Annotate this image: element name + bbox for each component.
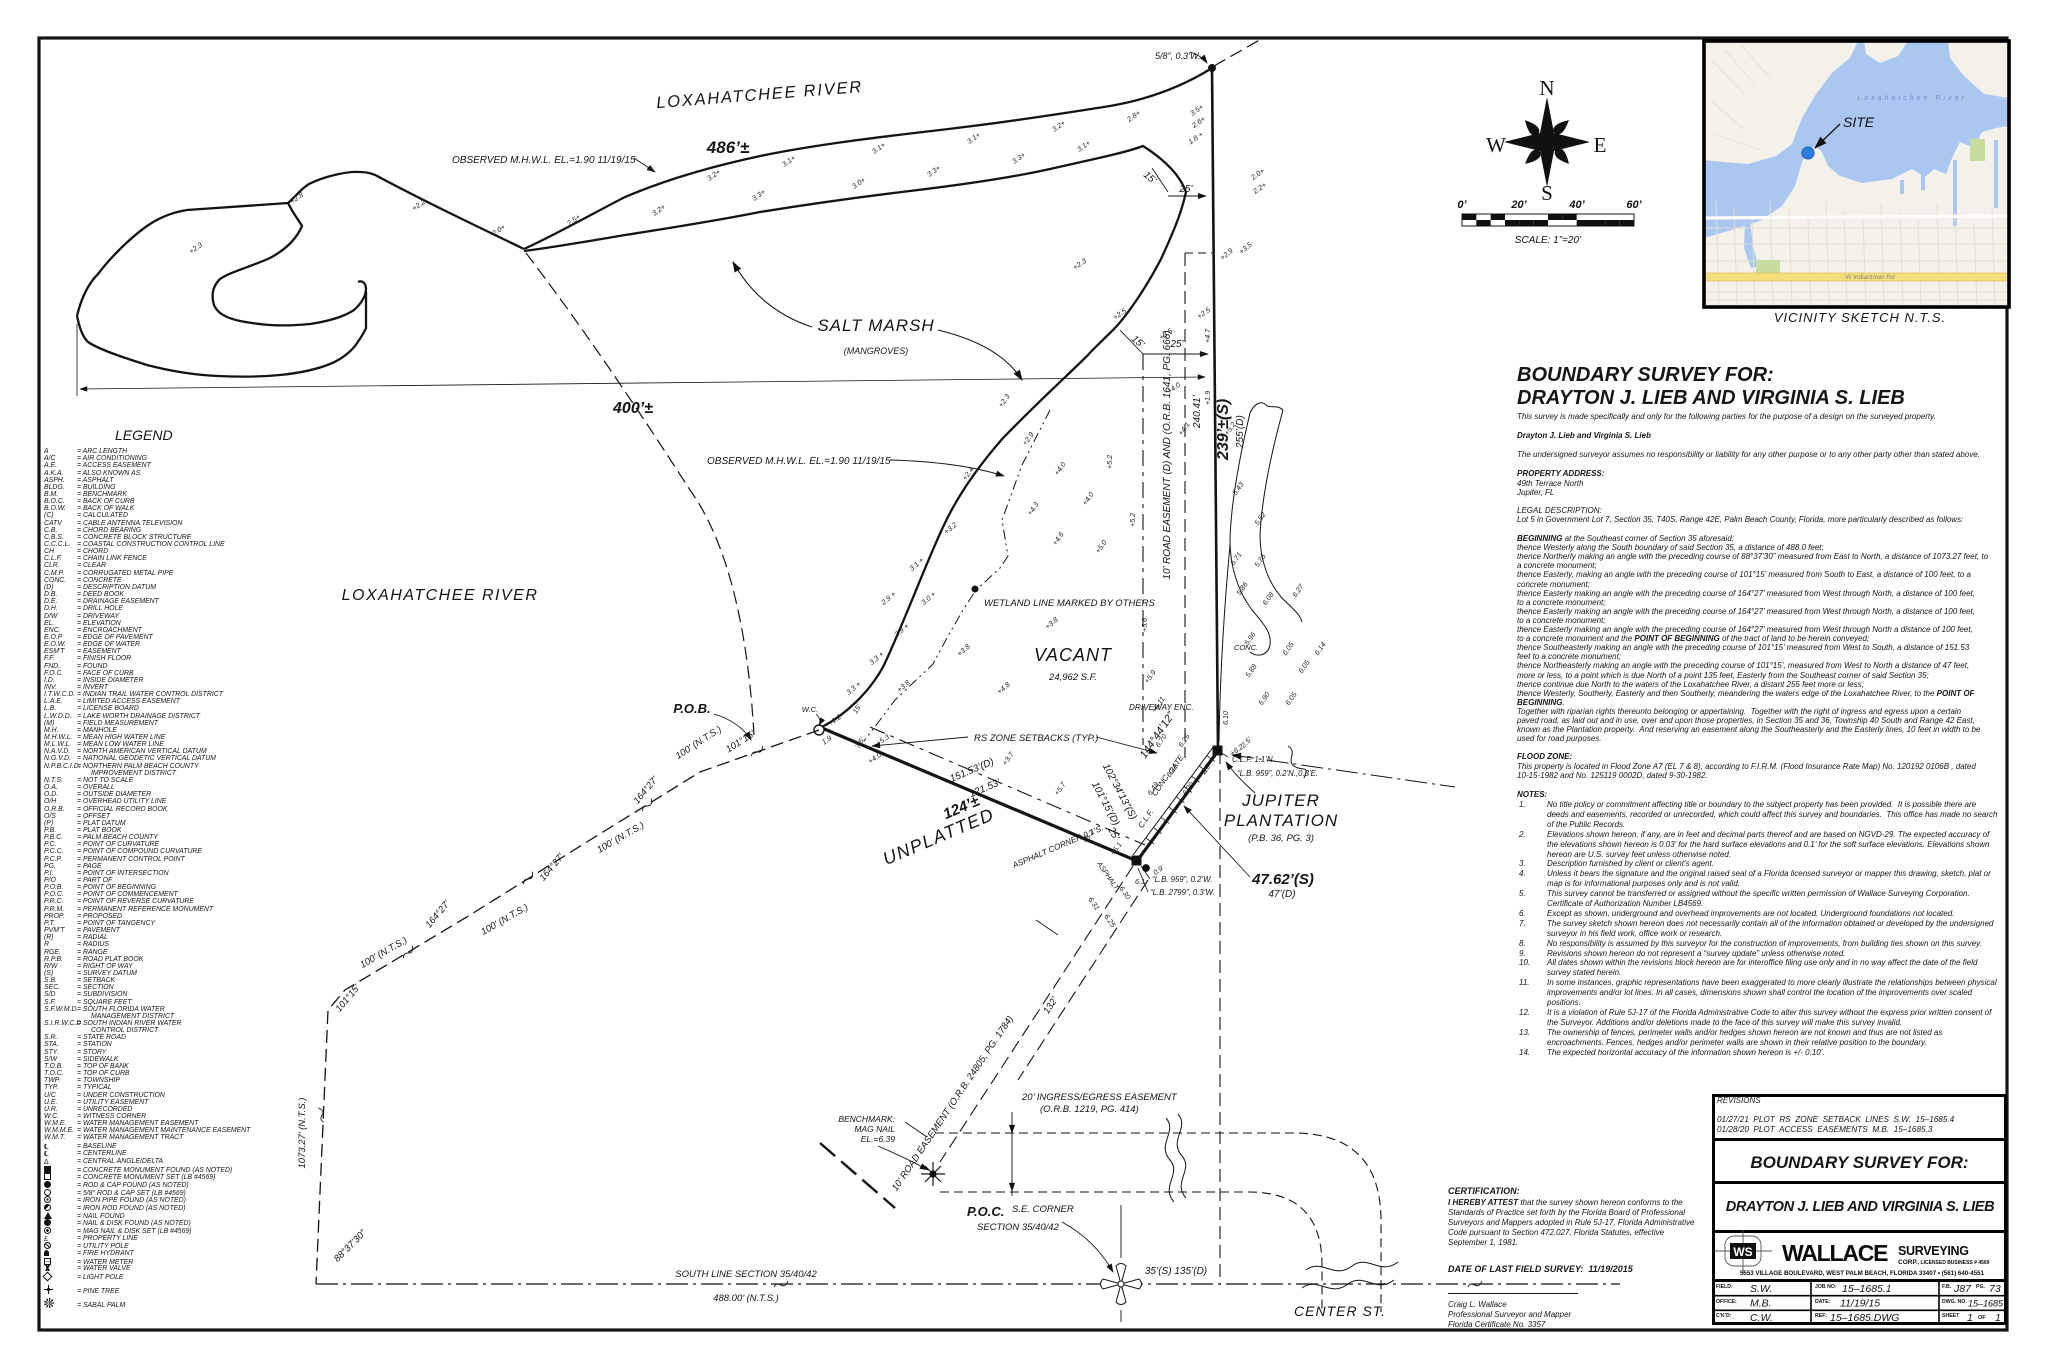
svg-text:3.1+: 3.1+ bbox=[780, 153, 797, 169]
svg-text:C.L.F. 1.1’N.: C.L.F. 1.1’N. bbox=[1232, 755, 1275, 764]
svg-text:VACANT: VACANT bbox=[1034, 645, 1113, 665]
svg-text:W.C.: W.C. bbox=[802, 705, 818, 714]
svg-text:3.3+: 3.3+ bbox=[1010, 150, 1027, 166]
svg-text:FIELD:: FIELD: bbox=[1716, 1284, 1733, 1290]
svg-text:S: S bbox=[1541, 181, 1553, 205]
svg-text:6.14: 6.14 bbox=[1312, 640, 1327, 657]
svg-text:73: 73 bbox=[1989, 1283, 2001, 1295]
svg-text:+1.9: +1.9 bbox=[1203, 391, 1212, 405]
svg-text:M.B.: M.B. bbox=[1750, 1298, 1772, 1310]
svg-text:S.W.: S.W. bbox=[1750, 1283, 1772, 1295]
svg-text:15–1685.DWG: 15–1685.DWG bbox=[1830, 1312, 1899, 1324]
svg-text:2.9 +: 2.9 + bbox=[879, 589, 898, 607]
svg-text:3.1+: 3.1+ bbox=[1075, 138, 1092, 154]
svg-text:(O.R.B. 1219, PG. 414): (O.R.B. 1219, PG. 414) bbox=[1040, 1104, 1139, 1115]
svg-text:LOXAHATCHEE RIVER: LOXAHATCHEE RIVER bbox=[656, 78, 864, 112]
svg-text:F.B.: F.B. bbox=[1942, 1284, 1952, 1290]
svg-text:+2.9: +2.9 bbox=[1218, 246, 1235, 262]
svg-text:3.1+: 3.1+ bbox=[965, 130, 982, 146]
svg-text:1.8 +: 1.8 + bbox=[1186, 130, 1204, 147]
svg-text:+5.0: +5.0 bbox=[1093, 538, 1109, 555]
svg-text:JUPITER: JUPITER bbox=[1241, 791, 1320, 810]
svg-text:(P.B. 36, PG. 3): (P.B. 36, PG. 3) bbox=[1248, 833, 1314, 844]
svg-text:2.8+: 2.8+ bbox=[1124, 108, 1142, 124]
svg-text:“L.B. 959”, 0.2’W.: “L.B. 959”, 0.2’W. bbox=[1152, 875, 1212, 884]
svg-text:239’±(S): 239’±(S) bbox=[1215, 399, 1232, 461]
svg-text:SECTION 35/40/42: SECTION 35/40/42 bbox=[977, 1222, 1060, 1233]
svg-text:N: N bbox=[1539, 76, 1554, 100]
svg-text:J87: J87 bbox=[1953, 1283, 1972, 1295]
svg-text:25’: 25’ bbox=[1178, 184, 1193, 195]
svg-text:LEGEND: LEGEND bbox=[115, 427, 173, 443]
svg-text:C'K'D:: C'K'D: bbox=[1716, 1313, 1732, 1319]
svg-text:6.10: 6.10 bbox=[1221, 711, 1230, 725]
svg-text:SALT MARSH: SALT MARSH bbox=[817, 316, 934, 335]
svg-text:15–1685.1: 15–1685.1 bbox=[1842, 1283, 1892, 1295]
svg-text:25’: 25’ bbox=[1169, 339, 1184, 350]
svg-text:+4.7: +4.7 bbox=[1203, 328, 1212, 343]
svg-text:SITE: SITE bbox=[1843, 114, 1875, 130]
svg-text:SURVEYING: SURVEYING bbox=[1898, 1244, 1969, 1258]
svg-text:100’ (N.T.S.): 100’ (N.T.S.) bbox=[595, 820, 646, 856]
svg-text:+4.6: +4.6 bbox=[1050, 530, 1066, 547]
svg-text:MAG NAIL: MAG NAIL bbox=[854, 1124, 895, 1134]
svg-text:BENCHMARK:: BENCHMARK: bbox=[838, 1114, 895, 1124]
svg-text:+2.4: +2.4 bbox=[960, 465, 976, 482]
svg-text:+3.8: +3.8 bbox=[955, 642, 972, 658]
svg-text:5.43: 5.43 bbox=[1230, 480, 1245, 497]
svg-text:W: W bbox=[1486, 133, 1506, 157]
svg-text:+4.1: +4.1 bbox=[1176, 420, 1192, 437]
svg-text:88°37’30”: 88°37’30” bbox=[332, 1227, 369, 1264]
svg-text:60’: 60’ bbox=[1626, 199, 1642, 211]
svg-text:3.1 +: 3.1 + bbox=[907, 555, 925, 572]
svg-text:+5.2: +5.2 bbox=[1105, 455, 1114, 469]
svg-text:ASPHALT: ASPHALT bbox=[1095, 859, 1122, 892]
svg-text:S.E. CORNER: S.E. CORNER bbox=[1012, 1204, 1074, 1215]
svg-text:OBSERVED M.H.W.L. EL.=1.90: OBSERVED M.H.W.L. EL.=1.90 11/19/15 bbox=[707, 456, 891, 467]
svg-text:255’(D): 255’(D) bbox=[1235, 415, 1246, 449]
svg-text:2.2+: 2.2+ bbox=[1250, 180, 1268, 196]
svg-text:+5.6: +5.6 bbox=[1140, 618, 1149, 632]
svg-text:+5.7: +5.7 bbox=[1052, 779, 1068, 797]
svg-text:W Indiantown Rd: W Indiantown Rd bbox=[1845, 274, 1895, 281]
svg-text:C.L.F.: C.L.F. bbox=[1136, 807, 1155, 829]
svg-text:20’: 20’ bbox=[1510, 199, 1527, 211]
svg-text:DWG. NO.: DWG. NO. bbox=[1942, 1299, 1967, 1305]
svg-text:20’ INGRESS/EGRESS EASEMENT: 20’ INGRESS/EGRESS EASEMENT bbox=[1021, 1092, 1178, 1103]
svg-text:35’(S) 135’(D): 35’(S) 135’(D) bbox=[1145, 1266, 1207, 1277]
svg-text:+2.9: +2.9 bbox=[1020, 430, 1036, 447]
svg-text:47.62’(S): 47.62’(S) bbox=[1251, 871, 1314, 888]
svg-text:EL.=6.39: EL.=6.39 bbox=[861, 1134, 896, 1144]
svg-text:240.41’: 240.41’ bbox=[1192, 394, 1203, 429]
svg-text:+3.5: +3.5 bbox=[1237, 239, 1254, 256]
svg-text:2.9 +: 2.9 + bbox=[892, 621, 911, 639]
svg-text:(MANGROVES): (MANGROVES) bbox=[844, 346, 909, 356]
svg-text:SOUTH LINE SECTION 35/40/42: SOUTH LINE SECTION 35/40/42 bbox=[675, 1269, 817, 1280]
svg-text:1073.27’ (N.T.S.): 1073.27’ (N.T.S.) bbox=[297, 1098, 308, 1169]
svg-text:100’ (N.T.S.): 100’ (N.T.S.) bbox=[358, 935, 409, 971]
svg-text:DRIVEWAY ENC.: DRIVEWAY ENC. bbox=[1129, 703, 1194, 712]
svg-text:WS: WS bbox=[1733, 1245, 1752, 1259]
svg-text:3.3 +: 3.3 + bbox=[867, 649, 885, 666]
svg-text:1: 1 bbox=[1995, 1312, 2001, 1324]
svg-text:OF: OF bbox=[1978, 1315, 1986, 1321]
svg-text:3.3 +: 3.3 + bbox=[844, 679, 862, 696]
svg-text:47’(D): 47’(D) bbox=[1268, 889, 1295, 900]
svg-text:+4.3: +4.3 bbox=[1025, 500, 1041, 517]
svg-text:11/19/15: 11/19/15 bbox=[1840, 1298, 1880, 1310]
svg-text:+2.5: +2.5 bbox=[1111, 306, 1129, 322]
svg-text:15’: 15’ bbox=[1141, 170, 1159, 188]
svg-text:5553 VILLAGE BOULEVARD, WEST P: 5553 VILLAGE BOULEVARD, WEST PALM BEACH,… bbox=[1740, 1270, 1985, 1277]
svg-text:6.27: 6.27 bbox=[1290, 581, 1306, 598]
svg-text:“L.B. 2799”, 0.3’W.: “L.B. 2799”, 0.3’W. bbox=[1150, 888, 1215, 897]
svg-text:2.5+: 2.5+ bbox=[564, 212, 582, 228]
svg-text:6.08: 6.08 bbox=[1260, 590, 1275, 607]
svg-text:132’: 132’ bbox=[1041, 994, 1061, 1016]
svg-text:PLANTATION: PLANTATION bbox=[1224, 811, 1338, 830]
svg-text:+2.3: +2.3 bbox=[187, 240, 204, 256]
svg-text:15–1685: 15–1685 bbox=[1968, 1299, 2004, 1309]
svg-text:40’: 40’ bbox=[1568, 199, 1585, 211]
svg-text:SCALE: 1”=20’: SCALE: 1”=20’ bbox=[1515, 235, 1582, 246]
svg-text:E: E bbox=[1594, 133, 1607, 157]
svg-text:5.76: 5.76 bbox=[1252, 552, 1267, 569]
svg-text:+2.5: +2.5 bbox=[1195, 305, 1213, 321]
svg-text:+2.3: +2.3 bbox=[1071, 256, 1088, 272]
svg-text:+3.7: +3.7 bbox=[1000, 749, 1016, 767]
svg-text:+3.8: +3.8 bbox=[895, 678, 912, 694]
svg-text:6.25: 6.25 bbox=[1102, 912, 1118, 929]
svg-text:RS ZONE SETBACKS (TYP.): RS ZONE SETBACKS (TYP.) bbox=[974, 733, 1098, 744]
svg-text:5.88: 5.88 bbox=[1243, 662, 1258, 679]
svg-text:“L.B. 959”, 0.2’N.,0.3’E.: “L.B. 959”, 0.2’N.,0.3’E. bbox=[1237, 769, 1318, 778]
svg-text:10’ ROAD EASEMENT (O.R.B.: 10’ ROAD EASEMENT (O.R.B. 24805, PG. 178… bbox=[890, 1014, 1016, 1193]
svg-text:25’: 25’ bbox=[1105, 824, 1122, 843]
svg-text:CONC.: CONC. bbox=[1234, 643, 1258, 652]
svg-text:REF:: REF: bbox=[1815, 1313, 1827, 1319]
svg-text:3.0 +: 3.0 + bbox=[919, 589, 937, 606]
svg-text:WALLACE: WALLACE bbox=[1782, 1240, 1888, 1266]
svg-text:5.52: 5.52 bbox=[1252, 510, 1267, 527]
svg-text:6.31: 6.31 bbox=[1086, 895, 1101, 912]
svg-text:0’: 0’ bbox=[1457, 199, 1467, 211]
svg-text:WETLAND LINE MARKED BY OTH: WETLAND LINE MARKED BY OTHERS bbox=[984, 598, 1156, 609]
svg-text:101°15’: 101°15’ bbox=[724, 728, 758, 755]
svg-text:UNPLATTED: UNPLATTED bbox=[880, 804, 998, 869]
svg-text:3.2+: 3.2+ bbox=[650, 202, 667, 218]
svg-text:164°27’: 164°27’ bbox=[423, 898, 453, 931]
svg-text:2.0+: 2.0+ bbox=[1248, 166, 1266, 182]
svg-text:10’ ROAD EASEMENT (D) AND: 10’ ROAD EASEMENT (D) AND (O.R.B. 1641, … bbox=[1162, 330, 1173, 579]
svg-text:ASPHALT CORNER 0.1’S.: ASPHALT CORNER 0.1’S. bbox=[1010, 823, 1104, 870]
svg-text:CORP., LICENSED BUSINESS # 456: CORP., LICENSED BUSINESS # 4569 bbox=[1898, 1259, 1990, 1266]
svg-text:+4.0: +4.0 bbox=[1052, 460, 1068, 477]
svg-text:6.1: 6.1 bbox=[1135, 877, 1145, 886]
svg-text:DATE:: DATE: bbox=[1815, 1299, 1831, 1305]
svg-text:3.2+: 3.2+ bbox=[1050, 118, 1067, 134]
svg-text:OFFICE:: OFFICE: bbox=[1716, 1299, 1737, 1305]
svg-text:486’±: 486’± bbox=[706, 138, 750, 157]
svg-text:3.0+: 3.0+ bbox=[850, 175, 867, 191]
svg-text:15’: 15’ bbox=[1129, 334, 1147, 352]
svg-text:6.30: 6.30 bbox=[1117, 884, 1132, 901]
svg-text:+2.3: +2.3 bbox=[996, 392, 1012, 409]
svg-text:Loxahatchee River: Loxahatchee River bbox=[1857, 95, 1966, 102]
svg-text:+4.8: +4.8 bbox=[995, 680, 1012, 696]
svg-text:OBSERVED M.H.W.L. EL.=1.90: OBSERVED M.H.W.L. EL.=1.90 11/19/15 bbox=[452, 155, 636, 166]
svg-text:5.90: 5.90 bbox=[1256, 690, 1271, 707]
svg-text:1.9: 1.9 bbox=[820, 733, 833, 746]
svg-text:+5.9: +5.9 bbox=[1142, 668, 1158, 685]
svg-text:CENTER ST.: CENTER ST. bbox=[1294, 1303, 1386, 1319]
svg-text:1: 1 bbox=[1967, 1312, 1973, 1324]
svg-text:VICINITY SKETCH N.T.S.: VICINITY SKETCH N.T.S. bbox=[1774, 310, 1946, 325]
svg-text:100’ (N.T.S.): 100’ (N.T.S.) bbox=[674, 724, 724, 762]
svg-text:+4.0: +4.0 bbox=[1080, 490, 1096, 507]
svg-text:5.86: 5.86 bbox=[1234, 580, 1249, 597]
svg-text:6.05: 6.05 bbox=[1283, 689, 1299, 706]
svg-text:3.1+: 3.1+ bbox=[870, 140, 887, 156]
svg-text:+5.2: +5.2 bbox=[1128, 513, 1137, 527]
svg-text:400’±: 400’± bbox=[612, 400, 653, 417]
svg-text:3.3+: 3.3+ bbox=[750, 187, 767, 203]
svg-text:6.05: 6.05 bbox=[1296, 657, 1312, 674]
svg-text:6.05: 6.05 bbox=[1280, 639, 1296, 656]
svg-text:SHEET: SHEET bbox=[1942, 1313, 1960, 1319]
svg-text:164°27’: 164°27’ bbox=[631, 774, 661, 807]
svg-text:3.3+: 3.3+ bbox=[925, 163, 942, 179]
svg-text:164°27’: 164°27’ bbox=[537, 851, 567, 884]
svg-text:144°44’12”: 144°44’12” bbox=[1138, 709, 1179, 761]
svg-text:P.O.B.: P.O.B. bbox=[673, 701, 710, 716]
svg-text:C.W.: C.W. bbox=[1750, 1312, 1773, 1324]
svg-text:100’ (N.T.S.): 100’ (N.T.S.) bbox=[479, 902, 530, 938]
svg-text:+5.3: +5.3 bbox=[874, 732, 891, 748]
svg-text:PG.: PG. bbox=[1976, 1284, 1985, 1290]
svg-text:24,962 S.F.: 24,962 S.F. bbox=[1048, 672, 1097, 683]
svg-text:5/8”, 0.3’W.: 5/8”, 0.3’W. bbox=[1155, 51, 1201, 61]
svg-text:6.25: 6.25 bbox=[1176, 731, 1192, 748]
svg-text:LOXAHATCHEE RIVER: LOXAHATCHEE RIVER bbox=[342, 587, 539, 604]
svg-text:+2.8: +2.8 bbox=[288, 190, 305, 206]
svg-text:JOB NO:: JOB NO: bbox=[1815, 1284, 1837, 1290]
svg-text:488.00’ (N.T.S.): 488.00’ (N.T.S.) bbox=[713, 1293, 779, 1304]
svg-text:P.O.C.: P.O.C. bbox=[967, 1204, 1004, 1219]
svg-text:+3.8: +3.8 bbox=[1043, 615, 1060, 631]
